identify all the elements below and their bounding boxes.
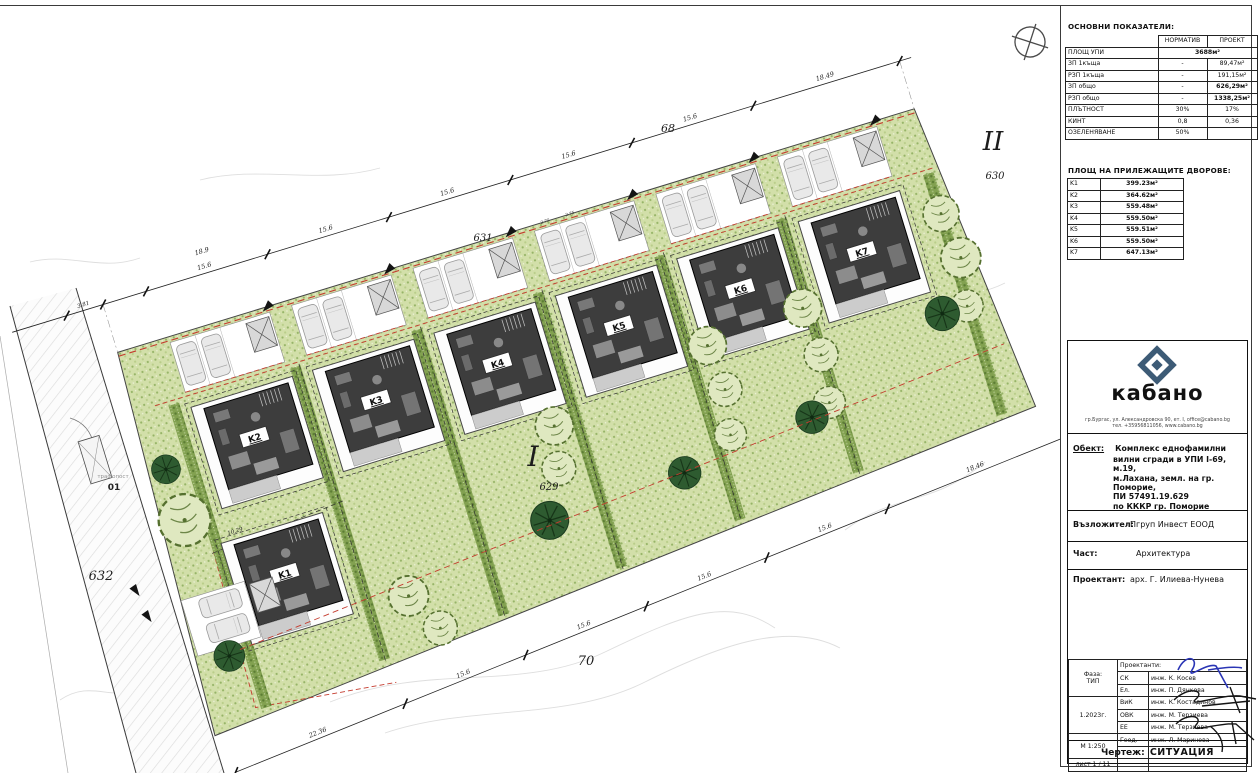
- client-value: Пгруп Инвест ЕООД: [1130, 520, 1214, 529]
- yard-value: 559.51м²: [1101, 225, 1184, 237]
- row-label: ЗП 1къща: [1066, 59, 1159, 71]
- row-label: ОЗЕЛЕНЯВАНЕ: [1066, 128, 1159, 140]
- row-norm: 50%: [1158, 128, 1207, 140]
- yard-value: 647.13м²: [1101, 248, 1184, 260]
- yard-value: 559.50м²: [1101, 236, 1184, 248]
- row-norm: 30%: [1158, 105, 1207, 117]
- zone-I: I: [526, 440, 539, 473]
- part-value: Архитектура: [1136, 549, 1190, 558]
- parcel-68: 68: [661, 122, 675, 135]
- transformer-number: 01: [108, 483, 121, 493]
- yards-title: ПЛОЩ НА ПРИЛЕЖАЩИТЕ ДВОРОВЕ:: [1068, 166, 1231, 175]
- team-code: ЕЕ: [1118, 721, 1149, 733]
- row-label: ПЛОЩ УПИ: [1066, 47, 1159, 59]
- yard-key: K3: [1068, 202, 1101, 214]
- logo-name: кабано: [1068, 383, 1247, 404]
- dimension-label: 22.36: [307, 725, 328, 740]
- parcel-629: 629: [539, 482, 559, 493]
- date-cell: 1.2023г.: [1069, 697, 1118, 734]
- row-proj: 89,47м²: [1207, 59, 1257, 71]
- client-label: Възложител:: [1073, 520, 1134, 529]
- yards-table: K1 399.23м² K2 364.62м² K3 559.48м² K4 5…: [1067, 178, 1184, 260]
- row-norm: 0,8: [1158, 116, 1207, 128]
- object-line: Комплекс еднофамилни: [1115, 444, 1226, 453]
- indicators-title: ОСНОВНИ ПОКАЗАТЕЛИ:: [1068, 22, 1174, 31]
- client-section: Възложител: Пгруп Инвест ЕООД: [1068, 511, 1247, 542]
- yard-value: 399.23м²: [1101, 179, 1184, 191]
- object-line: вилни сгради в УПИ I-69, м.19,: [1113, 455, 1242, 474]
- row-norm: -: [1158, 70, 1207, 82]
- logo-address-line1: гр.Бургас, ул. Александровска 90, ет. I,…: [1068, 418, 1247, 424]
- dimension-label: 15.6: [318, 223, 334, 235]
- object-line: по КККР гр. Поморие: [1113, 502, 1242, 511]
- designer-section: Проектант: арх. Г. Илиева-Нунева: [1068, 569, 1247, 660]
- row-label: РЗП общо: [1066, 93, 1159, 105]
- parcel-632: 632: [89, 569, 114, 584]
- object-label: Обект:: [1073, 444, 1104, 453]
- yard-key: K1: [1068, 179, 1101, 191]
- yard-key: K4: [1068, 213, 1101, 225]
- yard-value: 559.48м²: [1101, 202, 1184, 214]
- col-header: ПРОЕКТ: [1207, 36, 1257, 48]
- parcel-70: 70: [578, 654, 595, 669]
- phase-label: Фаза:: [1084, 671, 1102, 678]
- row-proj: [1207, 128, 1257, 140]
- yard-key: K6: [1068, 236, 1101, 248]
- indicators-table: НОРМАТИВ ПРОЕКТ ПЛОЩ УПИ 3688м² ЗП 1къща…: [1065, 35, 1258, 140]
- row-proj: 1338,25м²: [1207, 93, 1257, 105]
- row-proj: 191,15м²: [1207, 70, 1257, 82]
- drawing-label: Чертеж:: [1101, 748, 1145, 758]
- object-line: м.Лахана, земл. на гр. Поморие,: [1113, 474, 1242, 493]
- yard-key: K7: [1068, 248, 1101, 260]
- dimension-label: 18.46: [965, 460, 985, 474]
- drawing-sheet: огр. линия на застр. K2: [0, 0, 1259, 773]
- kabano-logo-icon: [1135, 344, 1179, 386]
- object-section: Обект: Комплекс еднофамилни вилни сгради…: [1068, 433, 1247, 511]
- designer-label: Проектант:: [1073, 575, 1125, 584]
- parcel-630: 630: [985, 171, 1005, 182]
- dimension-label: 15.6: [561, 149, 577, 161]
- team-code: СК: [1118, 672, 1149, 684]
- row-norm: -: [1158, 59, 1207, 71]
- logo-address-line2: тел. +35956811056, www.cabano.bg: [1068, 424, 1247, 430]
- phase-cell: Фаза: ТИП: [1069, 660, 1118, 697]
- dimension-label: 15.6: [439, 186, 455, 198]
- part-label: Част:: [1073, 549, 1097, 558]
- row-proj: 0,36: [1207, 116, 1257, 128]
- phase-value: ТИП: [1086, 678, 1099, 685]
- team-code: ВиК: [1118, 697, 1149, 709]
- north-arrow-icon: [1006, 18, 1054, 66]
- titleblock-divider: [1060, 5, 1061, 767]
- row-label: ПЛЪТНОСТ: [1066, 105, 1159, 117]
- row-proj: 17%: [1207, 105, 1257, 117]
- parcel-631: 631: [473, 233, 492, 244]
- zone-II: II: [982, 127, 1004, 157]
- row-label: РЗП 1къща: [1066, 70, 1159, 82]
- part-section: Част: Архитектура: [1068, 541, 1247, 570]
- transformer-label: трафопост: [97, 474, 129, 480]
- team-code: ОВК: [1118, 709, 1149, 721]
- signature-blue: [1178, 659, 1242, 688]
- yard-value: 559.50м²: [1101, 213, 1184, 225]
- signature-black-2: [1176, 717, 1254, 752]
- sheet-border-top: [0, 5, 1252, 6]
- dimension-label: 18.9: [194, 245, 210, 257]
- row-norm: -: [1158, 93, 1207, 105]
- row-label: КИНТ: [1066, 116, 1159, 128]
- site-plan: огр. линия на застр. K2: [0, 0, 1060, 773]
- yard-key: K5: [1068, 225, 1101, 237]
- signatures: [1160, 648, 1259, 758]
- team-code: Ел.: [1118, 684, 1149, 696]
- yard-key: K2: [1068, 190, 1101, 202]
- dimension-label: 18.49: [815, 70, 835, 83]
- row-norm: -: [1158, 82, 1207, 94]
- row-label: ЗП общо: [1066, 82, 1159, 94]
- col-header: НОРМАТИВ: [1158, 36, 1207, 48]
- signature-black-1: [1174, 687, 1256, 713]
- yard-value: 364.62м²: [1101, 190, 1184, 202]
- logo-section: кабано гр.Бургас, ул. Александровска 90,…: [1068, 341, 1247, 434]
- object-line: ПИ 57491.19.629: [1113, 492, 1242, 501]
- dimension-label: 15.6: [682, 112, 698, 124]
- designer-value: арх. Г. Илиева-Нунева: [1130, 575, 1224, 584]
- row-value: 3688м²: [1158, 47, 1257, 59]
- row-proj: 626,29м²: [1207, 82, 1257, 94]
- dimension-label: 15.6: [196, 260, 212, 272]
